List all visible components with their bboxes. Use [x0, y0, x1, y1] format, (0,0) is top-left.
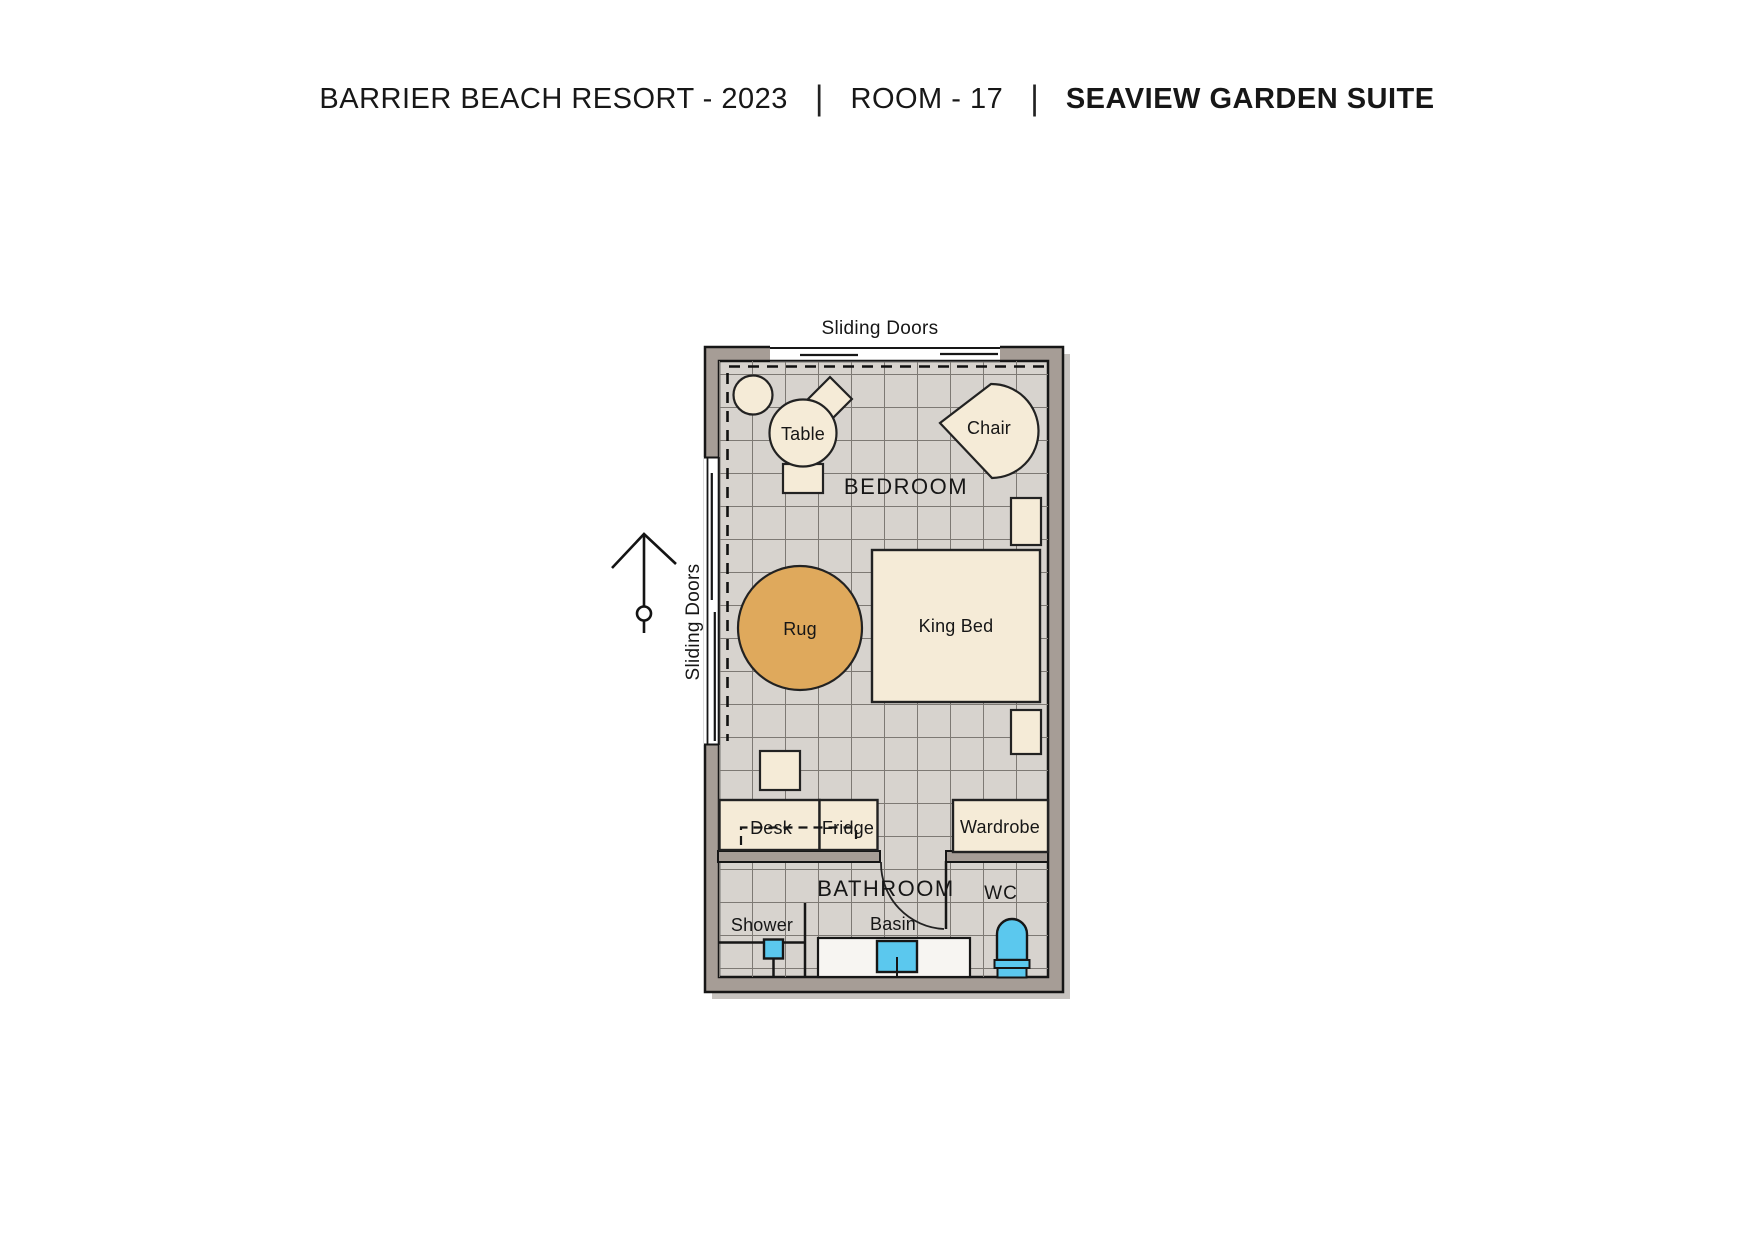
divider-wall-left — [718, 851, 880, 862]
bedroom-label: BEDROOM — [844, 474, 968, 499]
king-bed-label: King Bed — [919, 616, 994, 636]
rug-label: Rug — [783, 619, 817, 639]
stool-square — [760, 751, 800, 790]
table-seat — [783, 464, 823, 493]
wardrobe-label: Wardrobe — [960, 817, 1040, 837]
bathroom-label: BATHROOM — [817, 876, 954, 901]
shower-label: Shower — [731, 915, 793, 935]
floor-plan: Sliding Doors Sliding Doors BEDROOM BATH… — [0, 0, 1754, 1240]
sliding-door-left — [704, 457, 720, 745]
wc-label: WC — [984, 883, 1018, 904]
sliding-door-top — [770, 345, 1000, 363]
stool-round — [734, 376, 773, 415]
sliding-doors-left-label: Sliding Doors — [683, 564, 704, 681]
table-label: Table — [781, 424, 825, 444]
nightstand-top — [1011, 498, 1041, 545]
shower-drain — [764, 940, 783, 959]
basin-label: Basin — [870, 914, 916, 934]
sliding-doors-top-label: Sliding Doors — [822, 318, 939, 339]
toilet — [995, 919, 1030, 978]
chair-label: Chair — [967, 418, 1011, 438]
north-arrow-icon — [612, 534, 676, 633]
nightstand-bottom — [1011, 710, 1041, 754]
